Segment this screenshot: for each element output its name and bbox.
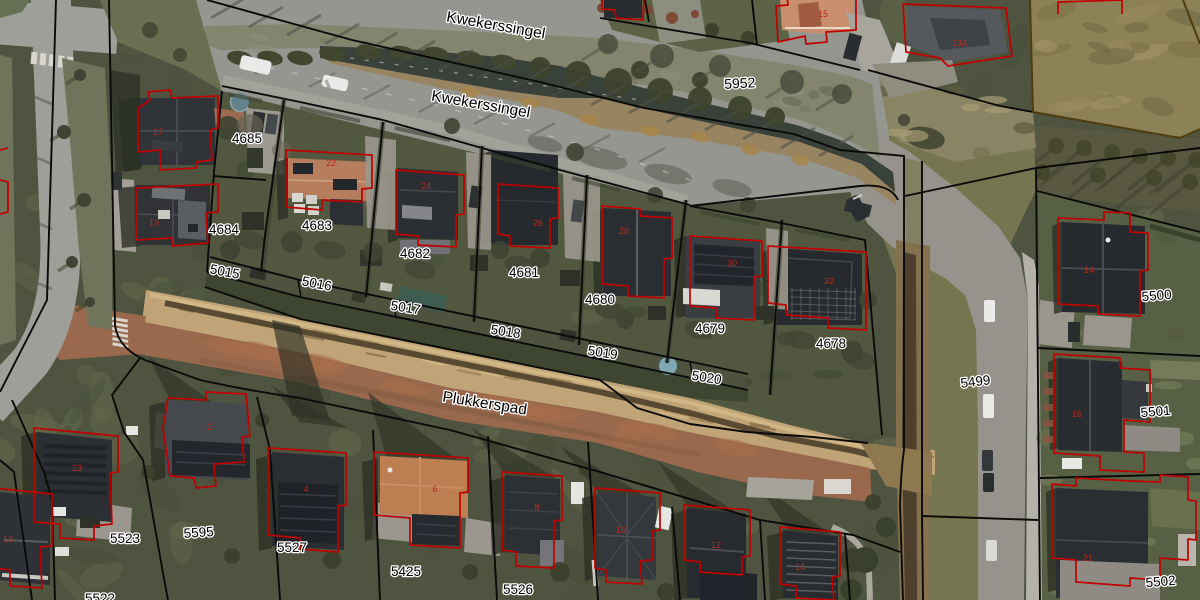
svg-text:4683: 4683: [302, 218, 332, 233]
svg-text:21: 21: [1083, 553, 1093, 563]
svg-text:19: 19: [149, 218, 159, 228]
svg-text:5522: 5522: [85, 591, 115, 600]
svg-text:26: 26: [533, 218, 543, 228]
svg-text:16: 16: [1072, 409, 1082, 419]
svg-text:4685: 4685: [232, 131, 262, 146]
svg-text:5523: 5523: [110, 531, 140, 546]
svg-text:13A: 13A: [952, 38, 967, 48]
svg-text:28: 28: [619, 226, 629, 236]
svg-text:30: 30: [727, 258, 737, 268]
svg-text:22: 22: [326, 158, 336, 168]
svg-text:5526: 5526: [503, 582, 533, 597]
svg-text:4680: 4680: [585, 292, 615, 307]
svg-text:14: 14: [1084, 265, 1094, 275]
svg-text:5527: 5527: [277, 540, 307, 555]
svg-text:13: 13: [3, 534, 13, 544]
svg-text:8: 8: [534, 502, 539, 512]
svg-text:5595: 5595: [183, 524, 214, 541]
svg-text:14: 14: [795, 562, 805, 572]
svg-text:4678: 4678: [816, 336, 846, 351]
svg-text:15: 15: [818, 9, 828, 19]
svg-text:4679: 4679: [695, 321, 725, 336]
svg-text:4: 4: [303, 484, 308, 494]
svg-text:12: 12: [711, 540, 721, 550]
svg-text:4684: 4684: [209, 222, 240, 237]
svg-text:4682: 4682: [400, 246, 430, 261]
svg-text:23: 23: [72, 463, 82, 473]
svg-text:4681: 4681: [509, 265, 539, 280]
svg-text:10: 10: [616, 525, 626, 535]
svg-text:24: 24: [421, 181, 431, 191]
svg-text:5952: 5952: [724, 74, 756, 92]
svg-text:6: 6: [432, 484, 437, 494]
svg-text:5500: 5500: [1141, 287, 1172, 305]
svg-text:17: 17: [153, 127, 163, 137]
svg-text:2: 2: [207, 422, 212, 432]
svg-text:32: 32: [824, 276, 834, 286]
svg-text:5501: 5501: [1140, 403, 1171, 421]
svg-text:5502: 5502: [1145, 573, 1176, 591]
svg-text:5425: 5425: [391, 564, 421, 579]
